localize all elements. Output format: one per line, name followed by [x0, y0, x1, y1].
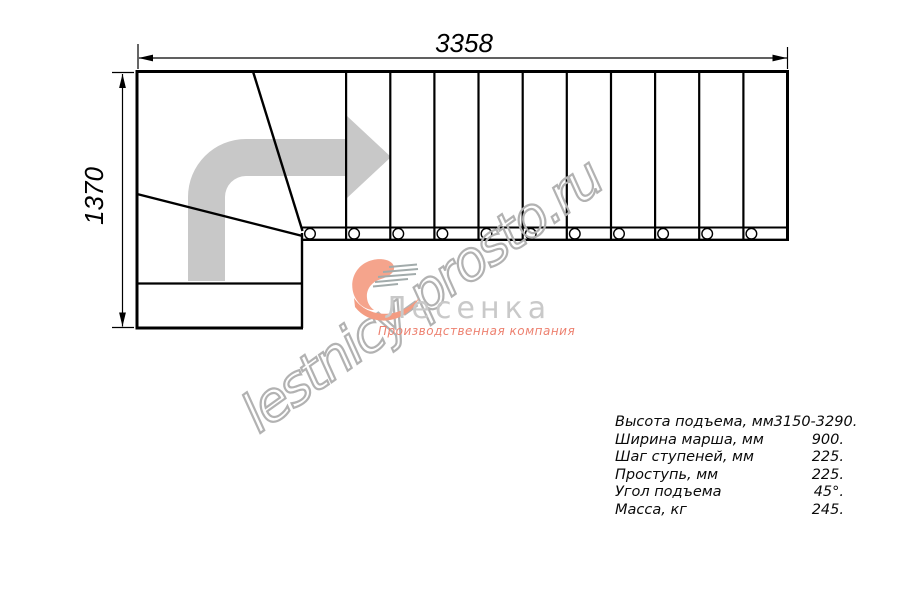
width-dimension-label: 3358: [435, 28, 493, 58]
logo-tagline: Производственная компания: [378, 324, 575, 338]
baluster-circle: [393, 228, 404, 239]
width-dimension: 3358: [138, 28, 788, 69]
logo-brand-name: Лесенка: [384, 294, 551, 324]
spec-label: Шаг ступеней, мм: [615, 449, 754, 467]
baluster-circle: [525, 228, 536, 239]
baluster-circle: [746, 228, 757, 239]
spec-value: 3150-3290.: [774, 414, 858, 432]
baluster-circles: [305, 228, 757, 239]
spec-label: Угол подъема: [615, 484, 722, 502]
arrowhead-icon: [773, 55, 788, 62]
height-dimension: 1370: [79, 73, 134, 328]
table-row: Шаг ступеней, мм 225.: [615, 449, 844, 467]
spec-label: Проступь, мм: [615, 467, 718, 485]
baluster-circle: [305, 228, 316, 239]
spec-value: 245.: [812, 502, 844, 520]
baluster-circle: [658, 228, 669, 239]
technical-drawing-canvas: 3358 1370 lestnicy-prosto.ru Лесенка Про…: [0, 0, 900, 600]
table-row: Ширина марша, мм 900.: [615, 432, 844, 450]
arrowhead-icon: [119, 74, 126, 88]
baluster-circle: [614, 228, 625, 239]
spec-label: Масса, кг: [615, 502, 687, 520]
baluster-circle: [481, 228, 492, 239]
baluster-circle: [349, 228, 360, 239]
spec-label: Высота подъема, мм: [615, 414, 774, 432]
spec-label: Ширина марша, мм: [615, 432, 764, 450]
spec-value: 225.: [812, 467, 844, 485]
arrowhead-icon: [119, 313, 126, 327]
table-row: Высота подъема, мм 3150-3290.: [615, 414, 844, 432]
table-row: Проступь, мм 225.: [615, 467, 844, 485]
table-row: Угол подъема 45°.: [615, 484, 844, 502]
spec-value: 45°.: [814, 484, 844, 502]
spec-value: 225.: [812, 449, 844, 467]
baluster-circle: [702, 228, 713, 239]
baluster-circle: [570, 228, 581, 239]
height-dimension-label: 1370: [79, 167, 109, 225]
table-row: Масса, кг 245.: [615, 502, 844, 520]
specs-table: Высота подъема, мм 3150-3290. Ширина мар…: [615, 414, 844, 519]
tread-lines: [346, 72, 743, 240]
arrowhead-icon: [139, 55, 154, 62]
baluster-circle: [437, 228, 448, 239]
spec-value: 900.: [812, 432, 844, 450]
